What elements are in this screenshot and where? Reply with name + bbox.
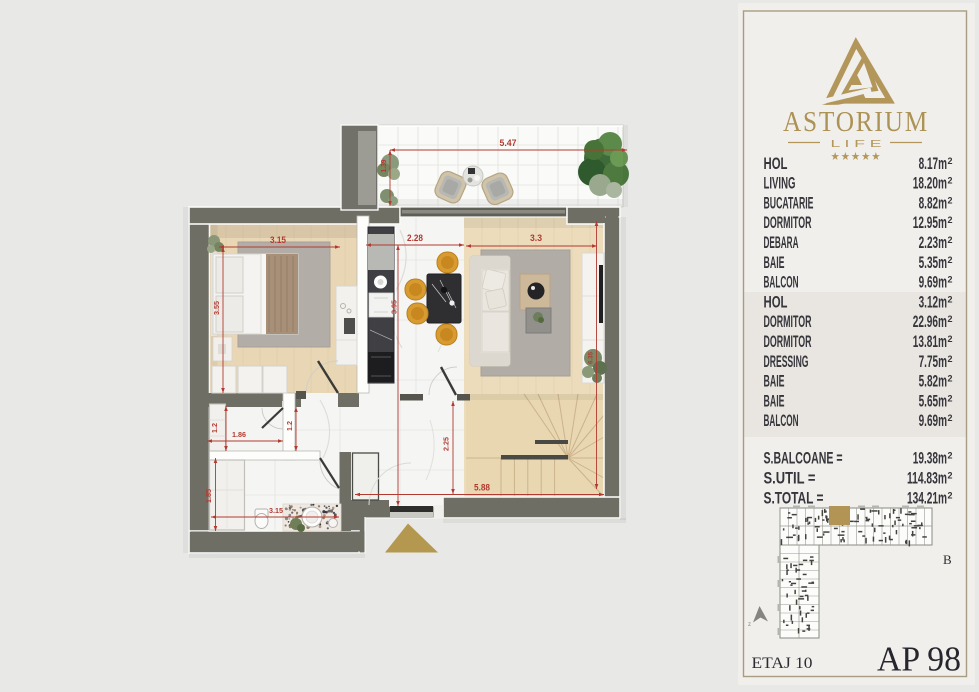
- svg-text:8.17m: 8.17m: [919, 154, 947, 173]
- svg-text:1.86: 1.86: [232, 430, 246, 439]
- svg-text:BALCON: BALCON: [764, 411, 799, 430]
- svg-text:3.15: 3.15: [269, 506, 283, 515]
- svg-text:2: 2: [948, 314, 953, 324]
- svg-text:1.2: 1.2: [210, 423, 219, 433]
- svg-text:DRESSING: DRESSING: [764, 352, 809, 371]
- svg-text:2: 2: [948, 471, 953, 481]
- svg-text:1.2: 1.2: [285, 421, 294, 431]
- svg-text:3.55: 3.55: [212, 301, 221, 315]
- svg-text:L I F E: L I F E: [831, 138, 882, 150]
- svg-text:AP 98: AP 98: [877, 640, 961, 679]
- svg-text:BALCON: BALCON: [764, 273, 799, 292]
- svg-text:8.82m: 8.82m: [919, 193, 947, 212]
- svg-text:HOL: HOL: [764, 292, 788, 311]
- svg-text:2: 2: [948, 334, 953, 344]
- svg-text:1.85: 1.85: [204, 489, 213, 503]
- svg-text:B: B: [943, 552, 952, 567]
- svg-text:S.UTIL =: S.UTIL =: [764, 469, 816, 488]
- svg-text:5.65m: 5.65m: [919, 391, 947, 410]
- svg-text:2: 2: [948, 374, 953, 384]
- svg-text:2: 2: [948, 255, 953, 265]
- svg-text:S.TOTAL =: S.TOTAL =: [764, 488, 824, 507]
- svg-text:BUCATARIE: BUCATARIE: [764, 193, 814, 212]
- svg-text:134.21m: 134.21m: [907, 488, 947, 507]
- svg-text:z: z: [748, 622, 751, 628]
- svg-text:2: 2: [948, 413, 953, 423]
- svg-text:BAIE: BAIE: [764, 391, 785, 410]
- svg-text:2: 2: [948, 156, 953, 166]
- svg-text:2: 2: [948, 235, 953, 245]
- svg-text:2: 2: [948, 354, 953, 364]
- svg-text:13.81m: 13.81m: [913, 332, 947, 351]
- svg-text:2.25: 2.25: [442, 437, 451, 451]
- svg-text:2: 2: [948, 490, 953, 500]
- svg-text:9.69m: 9.69m: [919, 273, 947, 292]
- svg-text:2: 2: [948, 294, 953, 304]
- svg-text:12.95m: 12.95m: [913, 213, 947, 232]
- svg-text:5.47: 5.47: [500, 138, 517, 149]
- svg-text:2: 2: [948, 176, 953, 186]
- svg-text:3.12m: 3.12m: [919, 292, 947, 311]
- svg-text:18.20m: 18.20m: [913, 174, 947, 193]
- svg-text:BAIE: BAIE: [764, 253, 785, 272]
- svg-text:BAIE: BAIE: [764, 372, 785, 391]
- svg-text:DORMITOR: DORMITOR: [764, 312, 812, 331]
- svg-text:2.28: 2.28: [407, 233, 423, 243]
- svg-text:DORMITOR: DORMITOR: [764, 213, 812, 232]
- svg-text:5.82m: 5.82m: [919, 372, 947, 391]
- svg-text:1.39: 1.39: [381, 159, 388, 172]
- svg-text:2: 2: [948, 275, 953, 285]
- svg-text:2: 2: [948, 195, 953, 205]
- svg-text:7.75m: 7.75m: [919, 352, 947, 371]
- svg-text:HOL: HOL: [764, 154, 788, 173]
- svg-text:★★★★★: ★★★★★: [831, 151, 882, 163]
- svg-text:DORMITOR: DORMITOR: [764, 332, 812, 351]
- svg-text:3.95: 3.95: [390, 300, 399, 314]
- svg-text:2: 2: [948, 451, 953, 461]
- svg-text:ETAJ 10: ETAJ 10: [752, 655, 813, 672]
- svg-text:5.35m: 5.35m: [919, 253, 947, 272]
- svg-text:9.69m: 9.69m: [919, 411, 947, 430]
- svg-text:3.3: 3.3: [530, 233, 542, 243]
- svg-text:S.BALCOANE =: S.BALCOANE =: [764, 449, 843, 468]
- svg-text:22.96m: 22.96m: [913, 312, 947, 331]
- svg-text:6.35: 6.35: [588, 352, 595, 364]
- svg-text:3.15: 3.15: [270, 235, 286, 245]
- svg-text:5.88: 5.88: [474, 483, 490, 493]
- svg-text:DEBARA: DEBARA: [764, 233, 799, 252]
- svg-text:2: 2: [948, 215, 953, 225]
- svg-text:19.38m: 19.38m: [913, 449, 947, 468]
- svg-text:ASTORIUM: ASTORIUM: [783, 107, 929, 138]
- svg-text:2.23m: 2.23m: [919, 233, 947, 252]
- svg-text:LIVING: LIVING: [764, 174, 796, 193]
- svg-text:114.83m: 114.83m: [907, 469, 947, 488]
- svg-text:2: 2: [948, 393, 953, 403]
